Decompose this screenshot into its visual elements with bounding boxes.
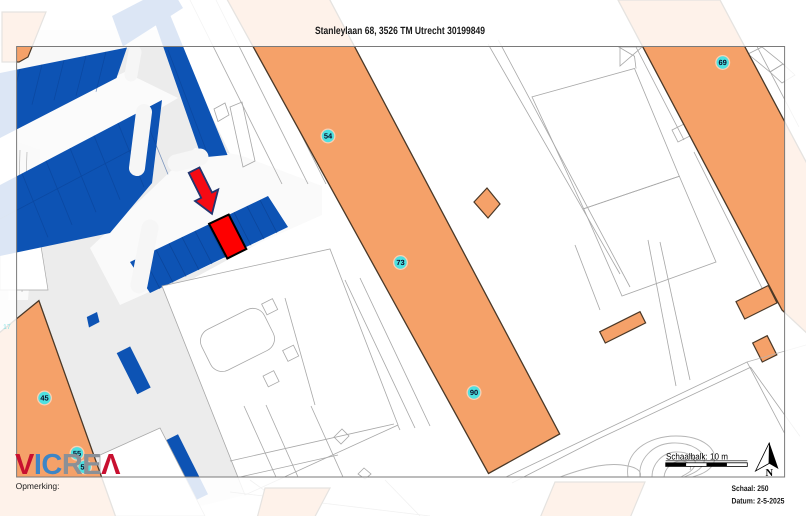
svg-text:45: 45 <box>40 394 48 403</box>
svg-text:Stanleylaan 68, 3526 TM Utrech: Stanleylaan 68, 3526 TM Utrecht 30199849 <box>315 25 485 37</box>
svg-text:Opmerking:: Opmerking: <box>16 481 60 491</box>
svg-text:17: 17 <box>3 324 11 331</box>
svg-text:Schaalbalk: 10 m: Schaalbalk: 10 m <box>666 452 728 462</box>
svg-text:Schaal: 250: Schaal: 250 <box>732 484 769 493</box>
svg-text:69: 69 <box>719 58 727 67</box>
svg-text:Datum: 2-5-2025: Datum: 2-5-2025 <box>732 497 785 506</box>
svg-text:VICREΛ: VICREΛ <box>15 449 121 481</box>
svg-text:54: 54 <box>324 132 333 141</box>
svg-text:73: 73 <box>396 258 404 267</box>
svg-text:N: N <box>766 468 774 479</box>
svg-text:90: 90 <box>470 388 478 397</box>
